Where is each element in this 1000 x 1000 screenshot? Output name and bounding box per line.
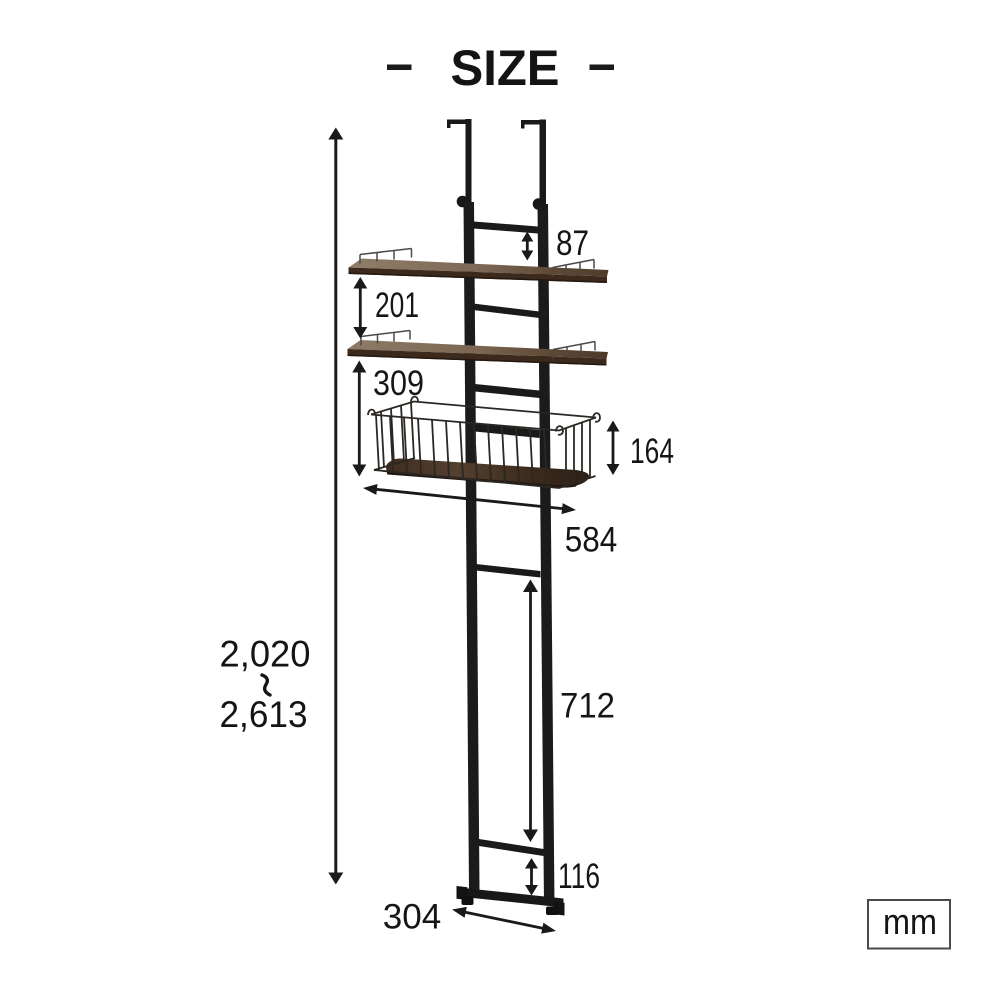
svg-text:87: 87 bbox=[556, 224, 589, 263]
svg-text:201: 201 bbox=[375, 286, 419, 325]
svg-text:309: 309 bbox=[373, 364, 424, 403]
svg-text:mm: mm bbox=[883, 901, 937, 942]
svg-text:2,613: 2,613 bbox=[220, 694, 308, 735]
svg-text:164: 164 bbox=[630, 432, 674, 471]
svg-text:712: 712 bbox=[560, 687, 615, 726]
svg-text:304: 304 bbox=[383, 898, 442, 937]
svg-text:SIZE: SIZE bbox=[451, 40, 560, 96]
svg-text:584: 584 bbox=[565, 521, 618, 560]
svg-text:2,020: 2,020 bbox=[220, 634, 311, 675]
svg-text:116: 116 bbox=[558, 857, 600, 896]
